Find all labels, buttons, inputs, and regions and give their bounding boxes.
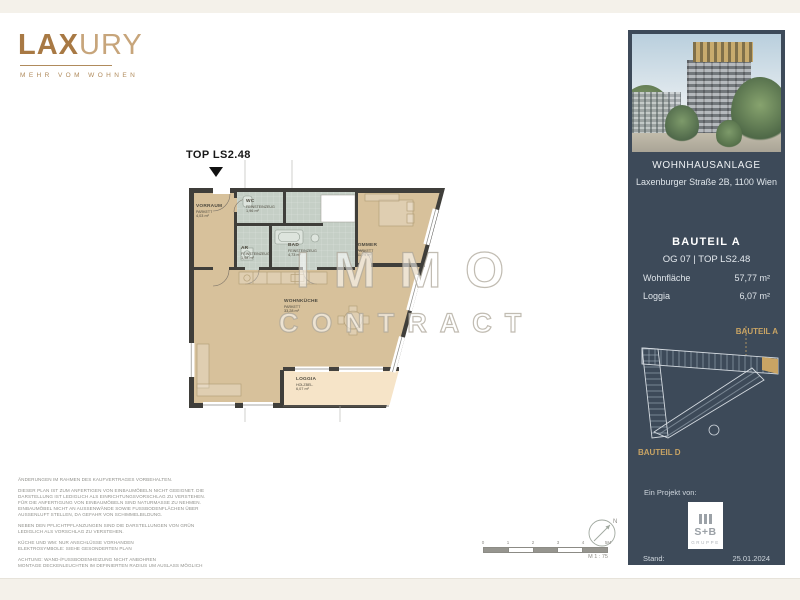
brand-tagline: MEHR VOM WOHNEN	[20, 72, 168, 79]
scale-ratio-label: M 1 : 75	[588, 554, 608, 560]
stat-label: Wohnfläche	[643, 273, 690, 283]
siteplan-marker-circle	[709, 425, 719, 435]
logo-bars-icon	[699, 514, 712, 524]
building-photo	[632, 34, 781, 152]
brand-name-light: URY	[79, 29, 143, 61]
north-letter: N	[613, 519, 617, 525]
bath-sink	[311, 234, 319, 242]
partner-logo-sub: GRUPPE	[691, 540, 720, 545]
stat-value: 57,77 m²	[734, 273, 770, 283]
expose-page: LAXURY MEHR VOM WOHNEN TOP LS2.48	[0, 0, 800, 600]
room-label-ar: AR FEINSTEINZEUG 1,98 m²	[241, 246, 270, 260]
scale-tick: 1	[507, 540, 510, 545]
entry-door-opening	[213, 188, 230, 195]
room-label-bad: BAD FEINSTEINZEUG 4,73 m²	[288, 243, 317, 257]
project-by-label: Ein Projekt von:	[644, 488, 697, 497]
brand-divider	[20, 65, 112, 66]
disclaimer-paragraph: DIESER PLAN IST ZUM ANFERTIGEN VON EINBA…	[18, 488, 208, 518]
shaft	[321, 195, 355, 222]
brand-name: LAXURY	[18, 30, 168, 60]
dining-table	[344, 311, 362, 329]
site-plan: BAUTEIL A BAUTEIL D	[628, 322, 785, 462]
room-label-vorraum: VORRAUM PARKETT 4,03 m²	[196, 204, 222, 218]
wing-diagonal	[654, 368, 764, 438]
wing-top	[642, 348, 778, 374]
floor-unit-label: OG 07 | TOP LS2.48	[628, 254, 785, 265]
partner-logo-sb-gruppe: S+B GRUPPE	[688, 502, 723, 549]
stat-row-wohnflaeche: Wohnfläche 57,77 m²	[628, 273, 785, 283]
scale-track	[483, 547, 608, 553]
disclaimer-paragraph: NEBEN DEN PFLICHTPFLANZUNGEN SIND DIE DA…	[18, 523, 208, 535]
bathtub	[275, 230, 303, 244]
building-section-label: BAUTEIL A	[628, 236, 785, 248]
stand-row: Stand: 25.01.2024	[628, 554, 785, 563]
scale-tick: 3	[557, 540, 560, 545]
siteplan-label-bauteil-d: BAUTEIL D	[638, 448, 681, 457]
wardrobe	[365, 194, 399, 201]
scale-tick: 5M	[605, 540, 611, 545]
stat-row-loggia: Loggia 6,07 m²	[628, 291, 785, 301]
footprint-outline	[642, 348, 778, 438]
disclaimer-paragraph: ACHTUNG: WAND-/FUSSBODENHEIZUNG NICHT AN…	[18, 557, 208, 569]
partner-logo-name: S+B	[694, 527, 716, 538]
brand-logo: LAXURY MEHR VOM WOHNEN	[18, 30, 168, 79]
page-bottom-margin	[0, 578, 800, 600]
loggia-glass-wall	[283, 367, 399, 373]
disclaimer-paragraph: ÄNDERUNGEN IM RAHMEN DES KAUFVERTRAGES V…	[18, 477, 208, 483]
scale-tick: 0	[482, 540, 485, 545]
sofa	[197, 344, 209, 388]
unit-marker-label: TOP LS2.48	[186, 149, 251, 161]
info-sidebar: WOHNHAUSANLAGE Laxenburger Straße 2B, 11…	[628, 30, 785, 565]
scale-ticks: 0 1 2 3 4 5M	[483, 540, 608, 547]
stand-date: 25.01.2024	[732, 554, 770, 563]
room-label-loggia: LOGGIA HOLZBEL. 6,07 m²	[296, 377, 316, 391]
project-address: Laxenburger Straße 2B, 1100 Wien	[628, 177, 785, 187]
scale-tick: 2	[532, 540, 535, 545]
room-label-wc: WC FEINSTEINZEUG 1,96 m²	[246, 199, 275, 213]
room-label-zimmer: ZIMMER PARKETT 11,79 m²	[357, 243, 377, 257]
stat-value: 6,07 m²	[739, 291, 770, 301]
siteplan-label-bauteil-a: BAUTEIL A	[736, 327, 778, 336]
stat-label: Loggia	[643, 291, 670, 301]
scale-tick: 4	[582, 540, 585, 545]
scale-bar: 0 1 2 3 4 5M M 1 : 75	[483, 540, 608, 570]
stand-label: Stand:	[643, 554, 665, 563]
tree-image	[716, 120, 742, 150]
brand-name-bold: LAX	[18, 29, 79, 61]
kitchen-counter	[239, 272, 327, 284]
tree-image	[665, 105, 699, 145]
disclaimer-block: ÄNDERUNGEN IM RAHMEN DES KAUFVERTRAGES V…	[18, 477, 208, 574]
room-label-wohnkueche: WOHNKÜCHE PARKETT 33,28 m²	[284, 299, 318, 313]
entry-arrow-icon	[209, 167, 223, 177]
building-gold-crown-image	[693, 42, 753, 62]
page-top-margin	[0, 0, 800, 13]
project-title: WOHNHAUSANLAGE	[628, 160, 785, 171]
disclaimer-paragraph: KÜCHE UND WM: NUR ANSCHLÜSSE VORHANDEN E…	[18, 540, 208, 552]
